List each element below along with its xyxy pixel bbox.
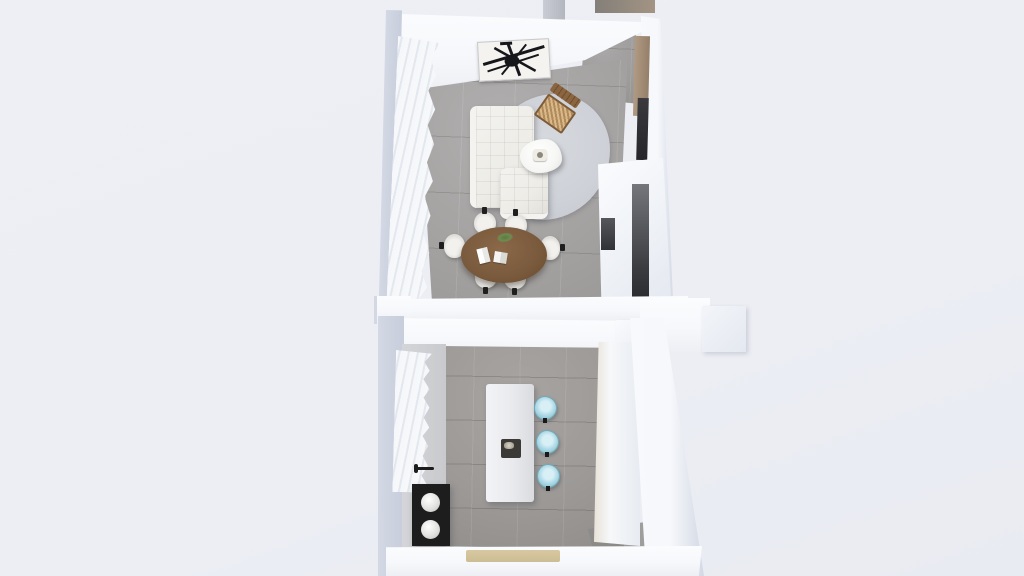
stool-leg xyxy=(545,452,549,457)
island-sink-dishes xyxy=(504,442,514,449)
kitchen-island[interactable] xyxy=(486,384,534,502)
room-kitchen[interactable] xyxy=(0,0,1024,576)
stool-leg xyxy=(546,486,550,491)
stool-leg xyxy=(543,418,547,423)
doormat[interactable] xyxy=(466,550,560,562)
kitchen-counter-right[interactable] xyxy=(594,342,640,546)
floorplan-stage xyxy=(0,0,1024,576)
black-sink-unit[interactable] xyxy=(412,484,450,546)
sink-basin-2 xyxy=(421,520,440,539)
island-sink xyxy=(501,439,521,458)
faucet-spout xyxy=(414,464,418,473)
wall-faucet[interactable] xyxy=(414,464,438,474)
sink-basin-1 xyxy=(421,493,440,512)
